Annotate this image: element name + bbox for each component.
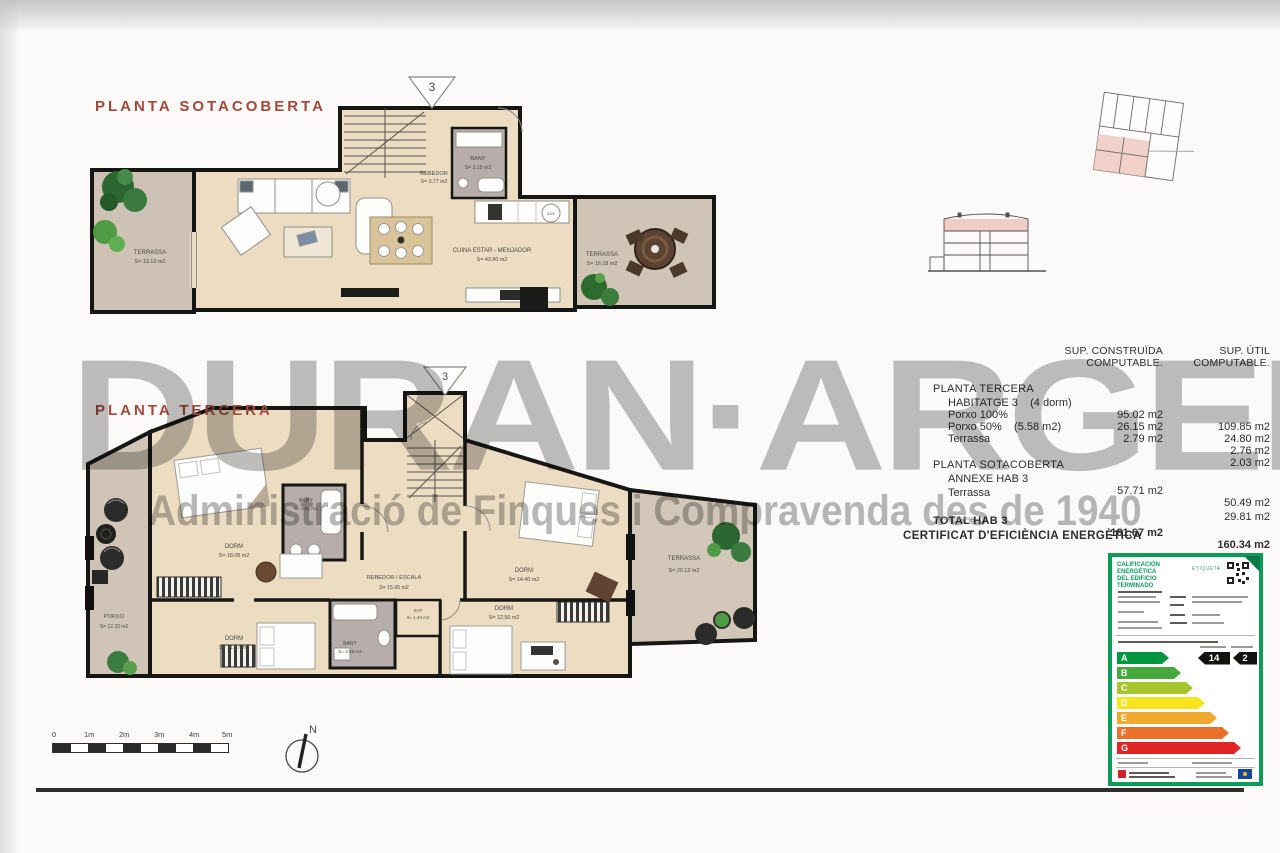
room-label: REBEDOR — [420, 171, 448, 177]
bathroom-sotacoberta — [452, 128, 506, 198]
energy-certificate: CALIFICACIÓN ENERGÉTICA DEL EDIFICIO TER… — [1108, 553, 1263, 786]
col2-header-line2: COMPUTABLE. — [1193, 357, 1270, 369]
cert-info-placeholder — [1192, 622, 1224, 624]
table-total-row: TOTAL HAB 3 181.67 m2 160.34 m2 — [930, 503, 1270, 515]
room-area: S= 12.23 m2 — [100, 624, 129, 630]
cert-info-placeholder — [1170, 622, 1187, 624]
scanner-edge-left — [0, 0, 20, 853]
scale-tick: 2m — [119, 730, 129, 739]
row-built: 2.79 m2 — [1123, 433, 1163, 445]
scale-bar: 0 1m 2m 3m 4m 5m — [52, 730, 242, 762]
cert-info-placeholder — [1118, 621, 1158, 623]
rating-arrow-a: A — [1117, 652, 1169, 664]
row-label: Terrassa — [948, 433, 990, 445]
surface-areas-table: SUP. CONSTRUÏDA COMPUTABLE. SUP. ÚTIL CO… — [930, 344, 1270, 544]
emissions-value-tag: 2 — [1233, 652, 1257, 665]
room-area: S= 15.65 m2 — [379, 585, 409, 591]
plan-title-tercera: PLANTA TERCERA — [95, 402, 273, 419]
plan-title-sotacoberta: PLANTA SOTACOBERTA — [95, 98, 326, 115]
room-area: S= 43.80 m2 — [477, 257, 508, 263]
room-label: BANY — [470, 156, 486, 162]
scale-tick: 1m — [84, 730, 94, 739]
scale-tick: 3m — [154, 730, 164, 739]
consumption-value-tag: 14 — [1198, 652, 1230, 665]
dining-table — [370, 217, 432, 264]
acs-label: ACS — [547, 212, 555, 216]
cert-info-placeholder — [1118, 601, 1160, 603]
room-area: S= 3.77 m2 — [421, 179, 448, 185]
rating-letter: G — [1121, 743, 1128, 753]
cert-info-placeholder — [1170, 596, 1186, 598]
col1-header-line1: SUP. CONSTRUÏDA — [1065, 345, 1164, 357]
rating-letter: D — [1121, 698, 1128, 708]
gencat-text-placeholder — [1129, 776, 1175, 778]
room-area: S= 16.18 m2 — [587, 261, 618, 267]
table-row: Porxo 100% 26.15 m2 24.80 m2 — [930, 397, 1270, 409]
room-area: S= 4.82 m2 — [294, 506, 318, 511]
table-section: PLANTA TERCERA — [930, 371, 1270, 383]
section-marker-number: 3 — [442, 371, 448, 383]
cert-info-placeholder — [1118, 627, 1162, 629]
room-label: REBEDOR I ESCALA — [367, 575, 422, 581]
room-label: SAT — [414, 608, 423, 614]
cert-info-placeholder — [1192, 601, 1242, 603]
divider — [1116, 635, 1255, 636]
room-label: DORM — [225, 544, 243, 550]
scale-tick: 0 — [52, 730, 56, 739]
col2-header-line1: SUP. ÚTIL — [1219, 345, 1270, 357]
room-label: BANY — [299, 498, 313, 504]
room-area: S= 11.67 m2 — [219, 645, 249, 651]
room-label: CUINA ESTAR - MENJADOR — [453, 248, 532, 254]
wardrobe — [157, 577, 221, 597]
certificate-title-line2: DEL EDIFICIO TERMINADO — [1117, 576, 1157, 589]
scanner-edge-top — [0, 0, 1280, 30]
room-area: S= 14.40 m2 — [509, 577, 540, 583]
rating-letter: F — [1121, 728, 1127, 738]
col-header-placeholder — [1200, 646, 1226, 648]
table-row: Terrassa 29.81 m2 — [930, 475, 1270, 487]
scale-heading-placeholder — [1118, 641, 1218, 643]
cert-info-placeholder — [1170, 614, 1185, 616]
scale-bar-segments — [52, 743, 229, 753]
total-useful: 160.34 m2 — [1217, 539, 1270, 551]
table-row: Porxo 50% (5.58 m2) 2.79 m2 2.76 m2 — [930, 409, 1270, 421]
certificate-section-title: CERTIFICAT D'EFICIÈNCIA ENERGÈTICA — [903, 530, 1142, 542]
section-marker-top: 3 — [408, 76, 456, 110]
rating-letter: B — [1121, 668, 1128, 678]
row-useful: 24.80 m2 — [1224, 433, 1270, 445]
room-label: TERRASSA — [134, 250, 166, 256]
scanned-floorplan-sheet: PLANTA SOTACOBERTA PLANTA TERCERA 3 3 — [0, 0, 1280, 853]
table-row: Terrassa 2.03 m2 — [930, 421, 1270, 433]
cert-info-placeholder — [1118, 596, 1156, 598]
certificate-title-line1: CALIFICACIÓN ENERGÉTICA — [1117, 562, 1160, 575]
section-marker-number: 3 — [429, 80, 436, 94]
gencat-logo — [1118, 770, 1126, 778]
glass-door — [190, 232, 198, 288]
room-label: DORM — [515, 568, 533, 574]
key-plan — [1090, 92, 1195, 192]
divider — [1116, 758, 1255, 759]
directive-text-placeholder — [1196, 776, 1232, 778]
room-area: S= 18.05 m2 — [219, 553, 250, 559]
room-area: S= 3.95 m2 — [338, 649, 362, 654]
cert-info-placeholder — [1192, 614, 1220, 616]
rating-letter: A — [1121, 653, 1128, 663]
room-label: PORXO — [104, 614, 125, 620]
bathroom-3 — [330, 600, 395, 668]
room-label: BANY — [343, 641, 357, 647]
rating-letter: E — [1121, 713, 1127, 723]
etiqueta-label: ETIQUETA — [1192, 566, 1221, 572]
table-row: HABITATGE 3 (4 dorm) 95.02 m2 109.85 m2 — [930, 385, 1270, 397]
divider — [1116, 767, 1255, 768]
room-area: S= 1.44 m2 — [407, 615, 430, 620]
eu-flag — [1238, 769, 1252, 779]
room-area: S= 3.19 m2 — [465, 165, 492, 171]
rating-arrow-d: D — [1117, 697, 1205, 709]
room-label: TERRASSA — [668, 556, 700, 562]
floorplan-tercera: DORM S= 18.05 m2 BANY S= 4.82 m2 REBEDOR… — [84, 386, 774, 690]
room-area: S= 20.12 m2 — [669, 568, 700, 574]
room-label: TERRASSA — [586, 252, 618, 258]
rating-letter: C — [1121, 683, 1128, 693]
scale-tick: 4m — [189, 730, 199, 739]
certificate-title: CALIFICACIÓN ENERGÉTICA DEL EDIFICIO TER… — [1117, 562, 1189, 590]
table-section: PLANTA SOTACOBERTA — [930, 447, 1270, 459]
rating-arrow-g: G — [1117, 742, 1241, 754]
building-section — [928, 205, 1046, 277]
north-label: N — [309, 724, 317, 736]
bathroom-2 — [283, 485, 345, 560]
room-area: S= 12.50 m2 — [489, 615, 520, 621]
rating-arrow-c: C — [1117, 682, 1193, 694]
room-area: S= 13.13 m2 — [135, 259, 166, 265]
total-footnote: *Sense Terrassa — [933, 516, 1273, 528]
kitchen-counter: ACS — [475, 201, 569, 223]
qr-code — [1226, 561, 1250, 585]
col1-header-line2: COMPUTABLE. — [1086, 357, 1163, 369]
cert-info-placeholder — [1118, 591, 1162, 593]
cert-footer-placeholder — [1192, 762, 1232, 764]
table-row: ANNEXE HAB 3 57.71 m2 50.49 m2 — [930, 461, 1270, 473]
cert-info-placeholder — [1118, 611, 1144, 613]
floorplan-sotacoberta: ACS — [88, 80, 718, 318]
sheet-bottom-border — [36, 788, 1244, 792]
north-arrow: N — [278, 722, 330, 778]
room-label: DORM — [495, 606, 513, 612]
room-label: DORM — [225, 636, 243, 642]
cert-info-placeholder — [1170, 604, 1184, 606]
rating-arrow-b: B — [1117, 667, 1181, 679]
gencat-text-placeholder — [1129, 772, 1169, 774]
directive-text-placeholder — [1196, 772, 1226, 774]
rating-arrow-f: F — [1117, 727, 1229, 739]
cert-footer-placeholder — [1118, 762, 1148, 764]
scale-tick: 5m — [222, 730, 232, 739]
cert-info-placeholder — [1192, 596, 1248, 598]
row-label: Terrassa — [948, 487, 990, 499]
section-marker-bottom: 3 — [423, 366, 467, 397]
rating-arrow-e: E — [1117, 712, 1217, 724]
col-header-placeholder — [1231, 646, 1253, 648]
